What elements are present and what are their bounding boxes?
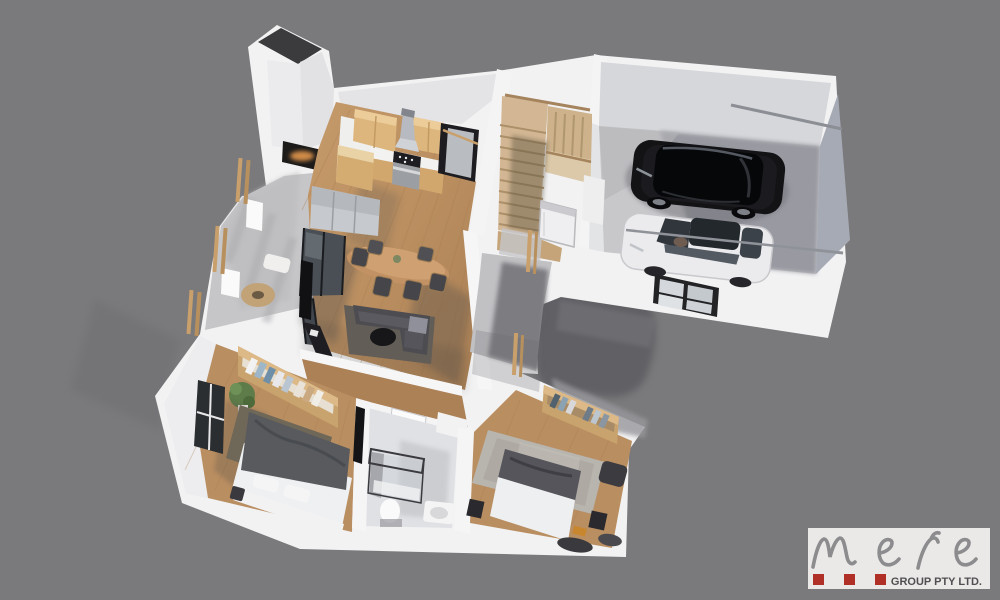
svg-text:GROUP PTY LTD.: GROUP PTY LTD.	[891, 576, 982, 588]
